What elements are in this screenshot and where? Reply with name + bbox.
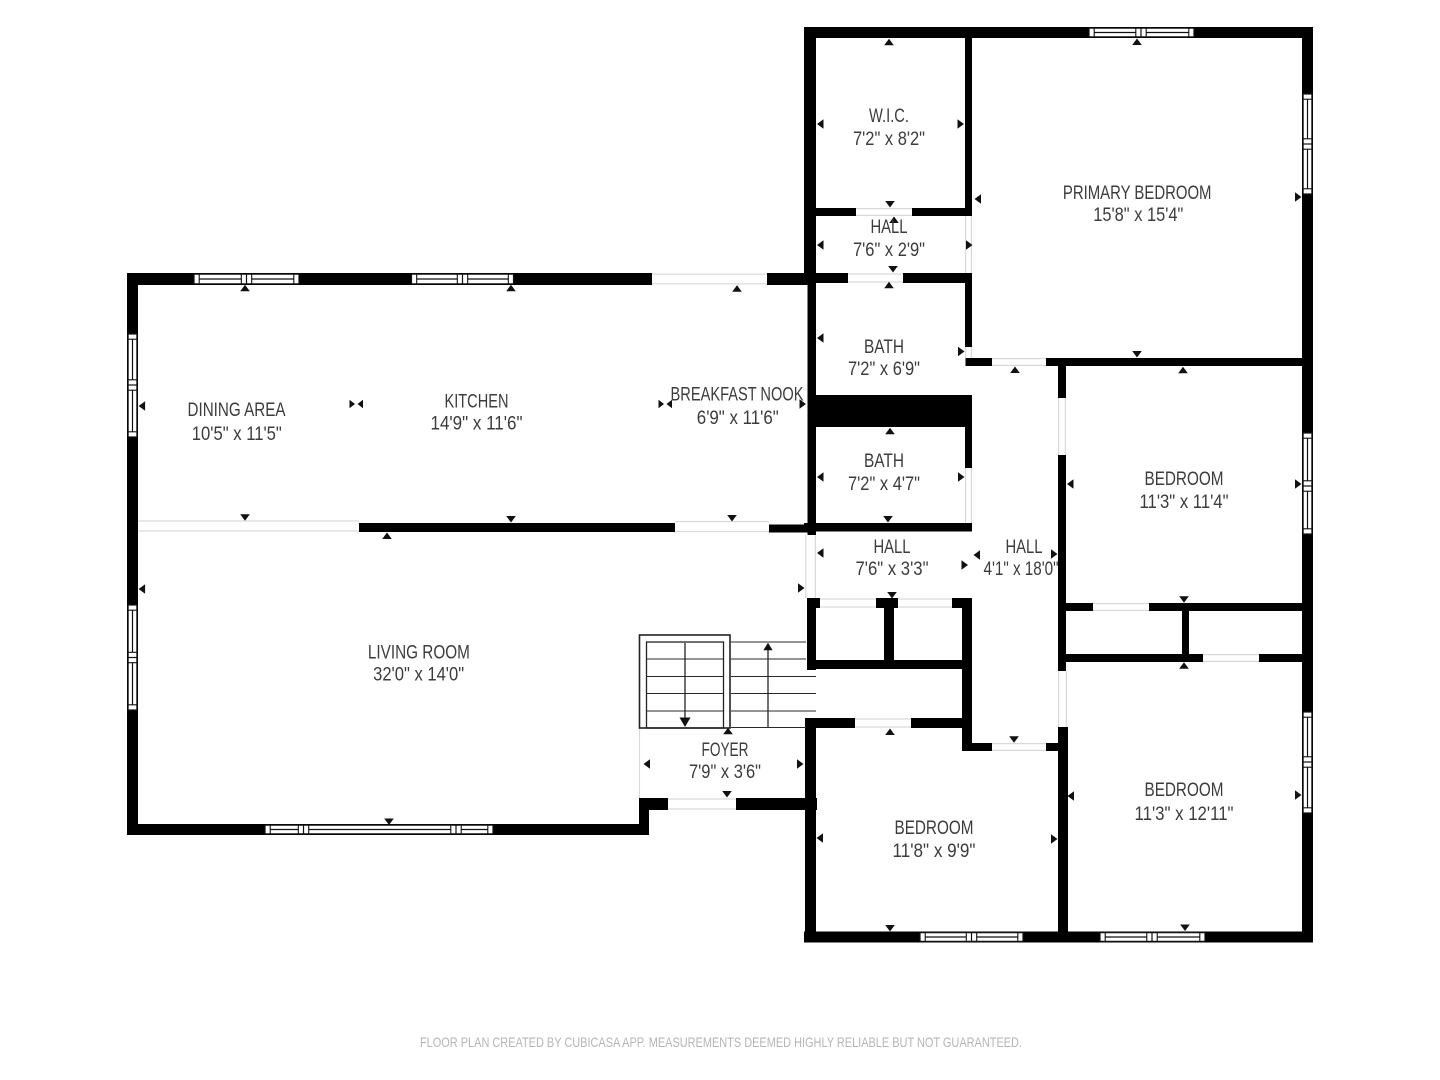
svg-text:7'2" x 8'2": 7'2" x 8'2" — [853, 129, 925, 150]
svg-text:11'3" x 11'4": 11'3" x 11'4" — [1140, 492, 1229, 513]
svg-text:KITCHEN: KITCHEN — [445, 392, 509, 413]
svg-text:BEDROOM: BEDROOM — [1145, 469, 1224, 490]
svg-text:11'8" x 9'9": 11'8" x 9'9" — [893, 841, 976, 862]
svg-text:BEDROOM: BEDROOM — [895, 818, 974, 839]
svg-text:FLOOR PLAN CREATED BY CUBICASA: FLOOR PLAN CREATED BY CUBICASA APP. MEAS… — [420, 1034, 1022, 1050]
svg-text:FOYER: FOYER — [702, 740, 749, 761]
svg-text:7'2" x 6'9": 7'2" x 6'9" — [848, 359, 920, 380]
svg-text:HALL: HALL — [1006, 537, 1043, 558]
svg-text:7'6" x 3'3": 7'6" x 3'3" — [856, 559, 929, 580]
svg-text:6'9" x 11'6": 6'9" x 11'6" — [697, 408, 779, 429]
svg-text:DINING AREA: DINING AREA — [188, 400, 286, 421]
svg-text:7'9" x 3'6": 7'9" x 3'6" — [689, 762, 761, 783]
svg-text:BATH: BATH — [864, 337, 904, 358]
svg-text:PRIMARY BEDROOM: PRIMARY BEDROOM — [1063, 183, 1212, 204]
svg-text:HALL: HALL — [874, 537, 911, 558]
svg-text:7'2" x 4'7": 7'2" x 4'7" — [848, 474, 920, 495]
svg-text:BEDROOM: BEDROOM — [1145, 780, 1224, 801]
svg-text:LIVING ROOM: LIVING ROOM — [368, 642, 470, 663]
svg-text:W.I.C.: W.I.C. — [869, 106, 909, 127]
svg-text:10'5" x 11'5": 10'5" x 11'5" — [192, 424, 282, 445]
svg-text:32'0" x 14'0": 32'0" x 14'0" — [373, 665, 464, 686]
svg-text:4'1" x 18'0": 4'1" x 18'0" — [984, 559, 1059, 580]
svg-text:BREAKFAST NOOK: BREAKFAST NOOK — [671, 385, 804, 406]
svg-text:7'6" x 2'9": 7'6" x 2'9" — [853, 240, 925, 261]
svg-text:11'3" x 12'11": 11'3" x 12'11" — [1135, 804, 1234, 825]
svg-text:14'9" x 11'6": 14'9" x 11'6" — [431, 414, 523, 435]
svg-text:HALL: HALL — [871, 217, 908, 238]
svg-text:15'8" x 15'4": 15'8" x 15'4" — [1093, 205, 1183, 226]
svg-text:BATH: BATH — [864, 451, 904, 472]
